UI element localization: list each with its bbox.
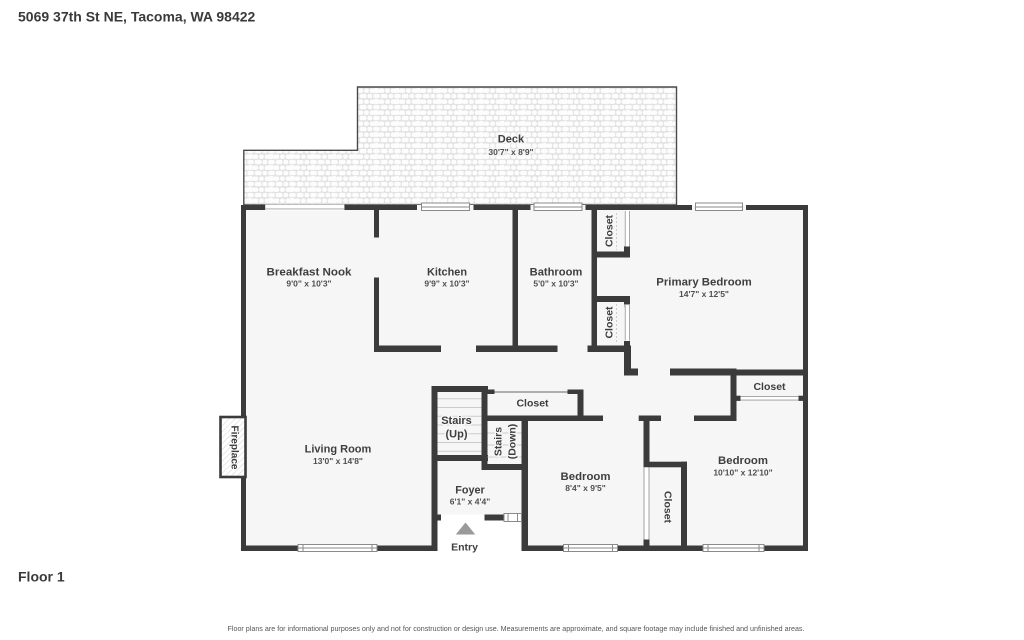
svg-text:30'7" x 8'9": 30'7" x 8'9" bbox=[488, 147, 533, 157]
svg-text:Closet: Closet bbox=[753, 381, 786, 393]
svg-text:Closet: Closet bbox=[661, 491, 673, 524]
svg-text:Foyer: Foyer bbox=[455, 485, 485, 497]
svg-text:(Down): (Down) bbox=[507, 424, 519, 460]
svg-text:14'7" x 12'5": 14'7" x 12'5" bbox=[679, 289, 729, 299]
svg-text:Floor 1: Floor 1 bbox=[18, 569, 65, 585]
svg-text:Breakfast Nook: Breakfast Nook bbox=[267, 266, 352, 278]
svg-text:Stairs: Stairs bbox=[493, 427, 505, 456]
svg-text:Bathroom: Bathroom bbox=[530, 266, 583, 278]
svg-text:Fireplace: Fireplace bbox=[228, 426, 239, 470]
svg-text:10'10" x 12'10": 10'10" x 12'10" bbox=[713, 468, 772, 478]
svg-text:Entry: Entry bbox=[451, 541, 478, 553]
svg-text:9'9" x 10'3": 9'9" x 10'3" bbox=[424, 278, 469, 288]
svg-text:Living Room: Living Room bbox=[305, 444, 372, 456]
svg-text:Closet: Closet bbox=[604, 306, 616, 339]
svg-text:Primary Bedroom: Primary Bedroom bbox=[656, 277, 751, 289]
svg-text:8'4" x 9'5": 8'4" x 9'5" bbox=[565, 483, 605, 493]
svg-text:Bedroom: Bedroom bbox=[561, 471, 611, 483]
svg-text:Closet: Closet bbox=[604, 214, 616, 247]
svg-text:9'0" x 10'3": 9'0" x 10'3" bbox=[286, 278, 331, 288]
svg-text:Deck: Deck bbox=[498, 134, 525, 146]
svg-text:5'0" x 10'3": 5'0" x 10'3" bbox=[533, 278, 578, 288]
svg-text:5069 37th St NE, Tacoma, WA 98: 5069 37th St NE, Tacoma, WA 98422 bbox=[18, 8, 256, 24]
svg-text:Bedroom: Bedroom bbox=[718, 455, 768, 467]
svg-text:13'0" x 14'8": 13'0" x 14'8" bbox=[313, 456, 363, 466]
svg-text:Closet: Closet bbox=[516, 398, 549, 410]
svg-text:(Up): (Up) bbox=[446, 429, 468, 441]
svg-text:6'1" x 4'4": 6'1" x 4'4" bbox=[450, 497, 490, 507]
svg-text:Stairs: Stairs bbox=[441, 415, 472, 427]
svg-text:Floor plans are for informatio: Floor plans are for informational purpos… bbox=[228, 626, 805, 633]
svg-text:Kitchen: Kitchen bbox=[427, 266, 467, 278]
